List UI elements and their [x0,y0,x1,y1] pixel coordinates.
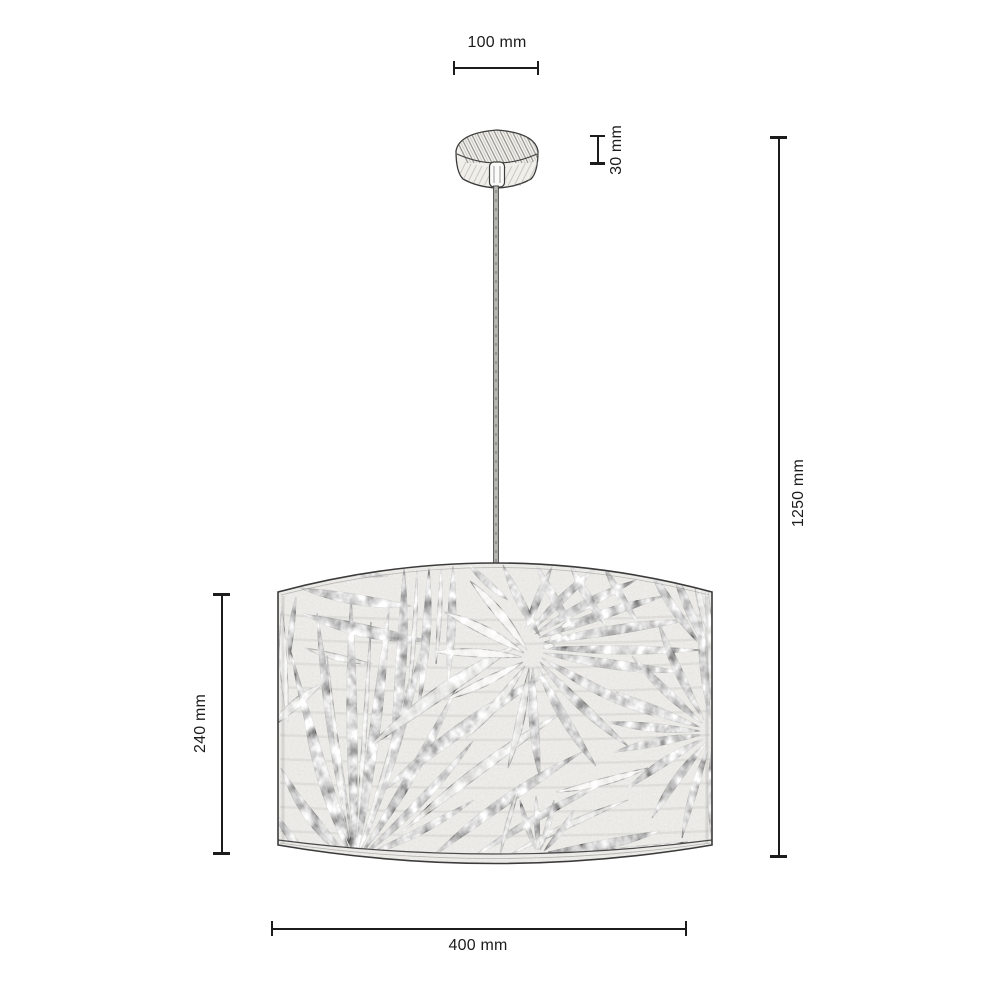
dim-line [221,594,223,855]
dim-tick [453,61,456,75]
dim-tick [685,921,688,936]
dim-tick [213,593,230,596]
dim-tick [770,136,787,139]
dim-line [272,928,686,930]
dim-tick [271,921,274,936]
canopy-width-label: 100 mm [437,34,557,52]
drum-shade [273,563,714,864]
dim-line [778,137,780,858]
shade-height-label: 240 mm [192,694,210,753]
ceiling-canopy [450,127,561,190]
canopy-height-label: 30 mm [608,125,626,175]
dim-tick [537,61,540,75]
pendant-lamp-drawing [0,0,1000,1000]
cord-grip [490,162,505,187]
dim-tick [770,855,787,858]
shade-diameter-label: 400 mm [418,937,538,955]
dim-line [454,67,538,69]
dim-tick [213,852,230,855]
dim-tick [590,135,605,138]
dimension-diagram: 100 mm 30 mm 1250 mm 240 mm 400 m [0,0,1000,1000]
total-height-label: 1250 mm [790,459,808,527]
dim-line [597,136,599,164]
pendant-cable [494,186,499,566]
dim-tick [590,162,605,165]
